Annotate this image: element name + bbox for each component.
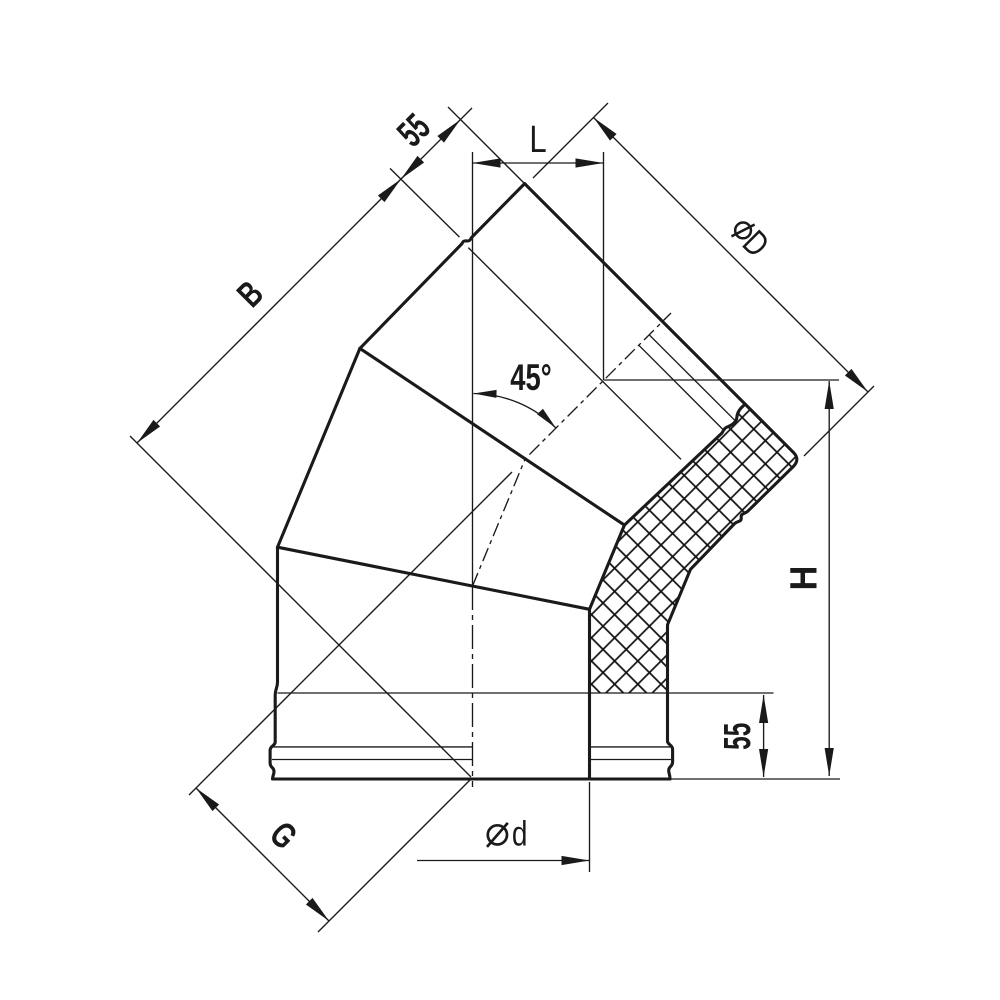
svg-text:d: d xyxy=(512,813,528,853)
svg-text:H: H xyxy=(782,566,825,591)
svg-text:45°: 45° xyxy=(510,357,551,398)
svg-text:55: 55 xyxy=(715,723,758,750)
svg-text:L: L xyxy=(529,119,546,161)
